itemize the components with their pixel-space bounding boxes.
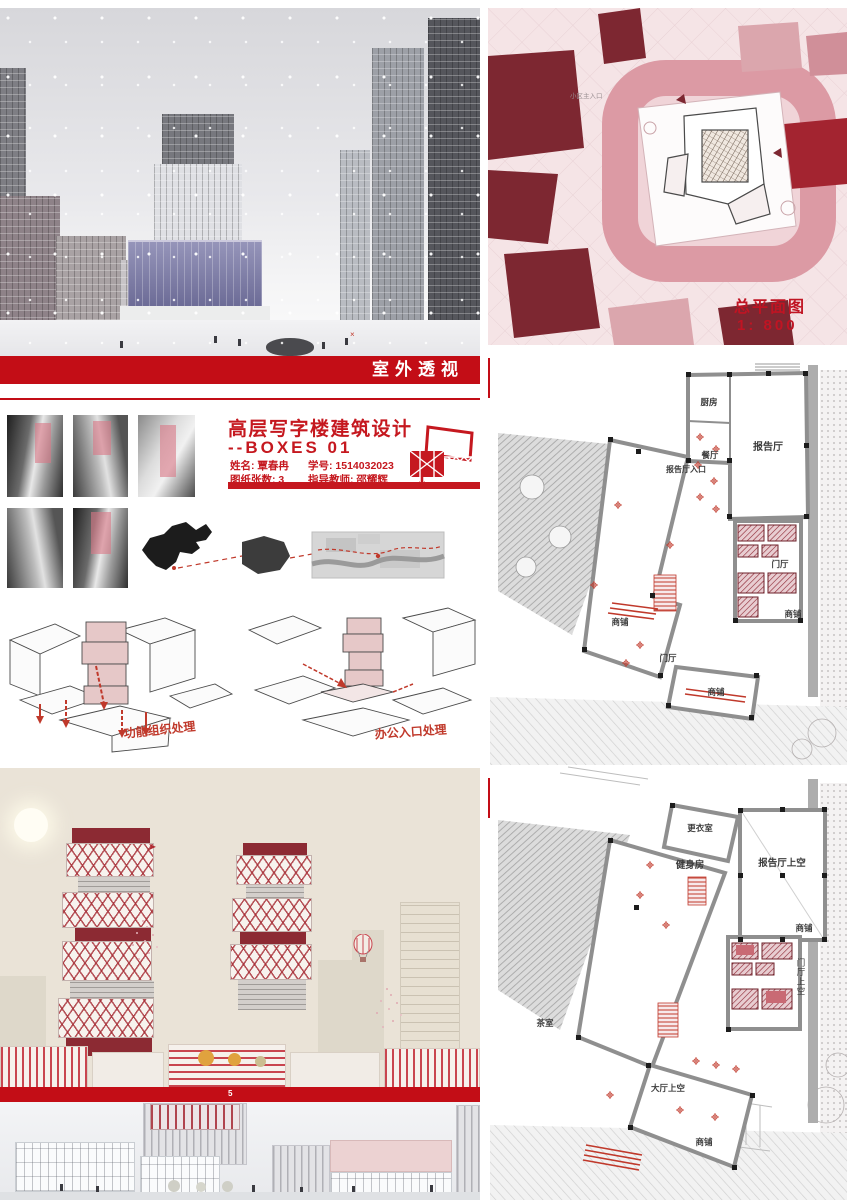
room-label: 门厅: [771, 559, 789, 569]
blossom-dots: [142, 920, 144, 922]
city-map: [312, 532, 444, 578]
pink-slab: [330, 1140, 452, 1172]
room-label-vertical: 门厅上空: [795, 958, 807, 996]
evening-render: ➤ 5: [0, 768, 480, 1200]
room-label: 商铺: [707, 687, 725, 697]
master-site-plan: 小区主入口 总平面图 1: 800: [488, 8, 847, 345]
room-label: 报告厅上空: [758, 857, 806, 869]
street-photo: [138, 415, 195, 497]
first-floor-plan: 厨房 报告厅 餐厅 报告厅入口 门厅 商铺 门厅 商铺 商铺: [490, 345, 847, 769]
site-plan-title: 总平面图: [734, 297, 806, 316]
moon: [14, 808, 48, 842]
red-bird-mark: ➤: [148, 842, 156, 853]
context-block: [784, 118, 847, 189]
exterior-perspective-render: ×: [0, 8, 480, 356]
presentation-board: × 室外透视: [0, 0, 847, 1200]
section-number: 5: [228, 1089, 232, 1098]
divider-rule: [0, 398, 480, 400]
province-map: [242, 536, 290, 574]
context-block: [488, 170, 558, 244]
room-label: 商铺: [784, 609, 802, 619]
street-photo: [73, 415, 128, 497]
section-band: 5: [0, 1087, 480, 1102]
diagram-entrance: 办公入口处理: [243, 600, 480, 760]
room-label: 餐厅: [700, 450, 719, 460]
context-block: [598, 8, 646, 64]
glass-box-red: [150, 1104, 240, 1130]
project-title: 高层写字楼建筑设计: [228, 414, 413, 441]
second-floor-plan: 更衣室 健身房 报告厅上空 商铺 茶室 大厅上空 商铺: [490, 765, 847, 1200]
tower-mass: [82, 622, 128, 704]
room-label: 更衣室: [687, 823, 713, 833]
student-id: 学号: 1514032023: [308, 458, 394, 473]
room-label: 健身房: [676, 859, 705, 871]
background-tower: [400, 902, 460, 1060]
context-block: [738, 22, 802, 72]
room-label: 报告厅: [753, 440, 783, 453]
tree: [228, 1053, 241, 1066]
snow-overlay: [0, 8, 480, 356]
room-label: 商铺: [795, 923, 813, 933]
perspective-caption-band: 室外透视: [0, 356, 480, 384]
street-photo: [7, 415, 63, 497]
stair: [654, 575, 676, 611]
diagram-function: 功能组织处理: [0, 600, 237, 760]
blossom-dots: [386, 988, 388, 990]
tower-mass: [343, 618, 383, 686]
site-plan-scale: 1: 800: [737, 317, 798, 334]
room-label: 报告厅入口: [666, 464, 706, 474]
room-label: 门厅: [659, 653, 677, 663]
room-label: 茶室: [535, 1018, 554, 1028]
street-photo: [7, 508, 63, 588]
hot-air-balloon-icon: [352, 934, 374, 964]
author-name: 姓名: 覃春冉: [230, 458, 289, 473]
route-dash: [178, 556, 242, 568]
street-photo: [73, 508, 128, 588]
spine-wall: [808, 365, 818, 697]
location-maps: [130, 520, 450, 586]
stair: [688, 877, 706, 905]
room-label: 商铺: [695, 1137, 713, 1147]
room-label: 商铺: [611, 617, 629, 627]
perspective-caption: 室外透视: [372, 360, 464, 379]
plaza-texture: [820, 370, 847, 710]
context-block: [504, 248, 600, 338]
room-label: 大厅上空: [651, 1083, 686, 1093]
room-label: 厨房: [700, 397, 717, 407]
project-subtitle: --BOXES 01: [228, 438, 352, 458]
stair: [658, 1003, 678, 1037]
context-block: [488, 50, 584, 160]
tree: [255, 1056, 266, 1067]
entrance-label: 小区主入口: [570, 91, 603, 100]
context-block: [806, 32, 847, 76]
tree: [198, 1050, 214, 1066]
project-logo-icon: [408, 424, 474, 490]
china-map: [142, 522, 212, 570]
